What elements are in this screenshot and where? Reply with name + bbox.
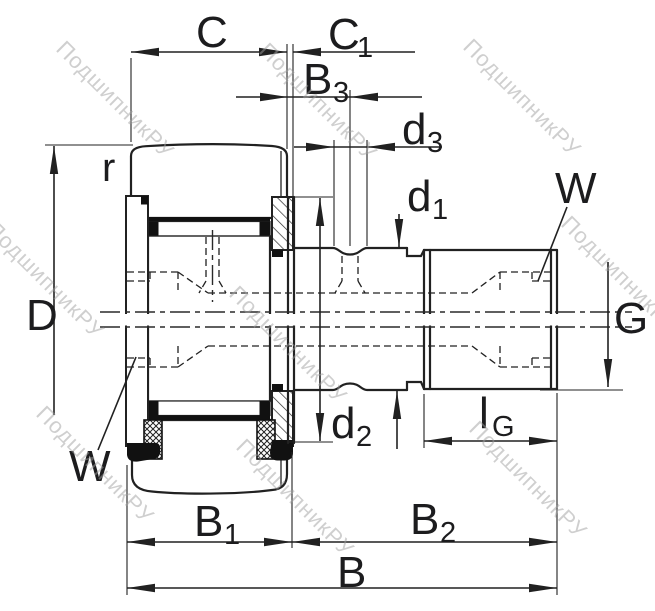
dim-d1 [393,214,403,449]
roller-end-block [148,401,159,416]
label-B2-sub: 2 [440,517,456,549]
leader-W-right [538,207,567,281]
label-d1-sub: 1 [432,194,448,226]
roller-end-block [260,222,271,237]
watermark-text: ПодшипникРУ [464,416,592,544]
label-d1: d [407,172,431,221]
left-plate-lip [141,196,148,205]
drawing-page: C C 1 B 3 d 3 d 1 W r D G d 2 l G W B 1 … [0,0,655,611]
label-C1: C [328,10,360,59]
lube-hole-stud [335,256,365,293]
label-d2-sub: 2 [356,421,372,453]
ring-raceway-top [148,217,270,222]
label-B1-sub: 1 [224,519,240,551]
centerline-break-band [105,314,600,326]
watermark-text: ПодшипникРУ [51,36,179,164]
right-plate-lip [272,250,283,257]
undercut-top [407,248,424,256]
watermark-text: ПодшипникРУ [458,34,586,162]
lube-hole-bearing [199,230,226,302]
roller-row-top [148,222,270,237]
right-plate-lip [272,384,283,391]
cam-follower-technical-drawing: C C 1 B 3 d 3 d 1 W r D G d 2 l G W B 1 … [0,0,655,611]
label-B1: B [194,497,223,546]
stud-top-edge [294,248,407,255]
right-end-plate-top [272,197,293,250]
ring-raceway-bottom [148,416,270,421]
label-d3: d [402,105,426,154]
label-d3-sub: 3 [427,127,443,159]
roller-end-block [148,222,159,237]
undercut-bottom [407,382,424,390]
roller-end-block [260,401,271,416]
label-C: C [196,8,228,57]
label-W-right: W [555,164,597,213]
label-B2: B [410,495,439,544]
roller-row-bottom [148,401,270,416]
label-r: r [102,146,115,190]
label-C1-sub: 1 [357,32,373,64]
